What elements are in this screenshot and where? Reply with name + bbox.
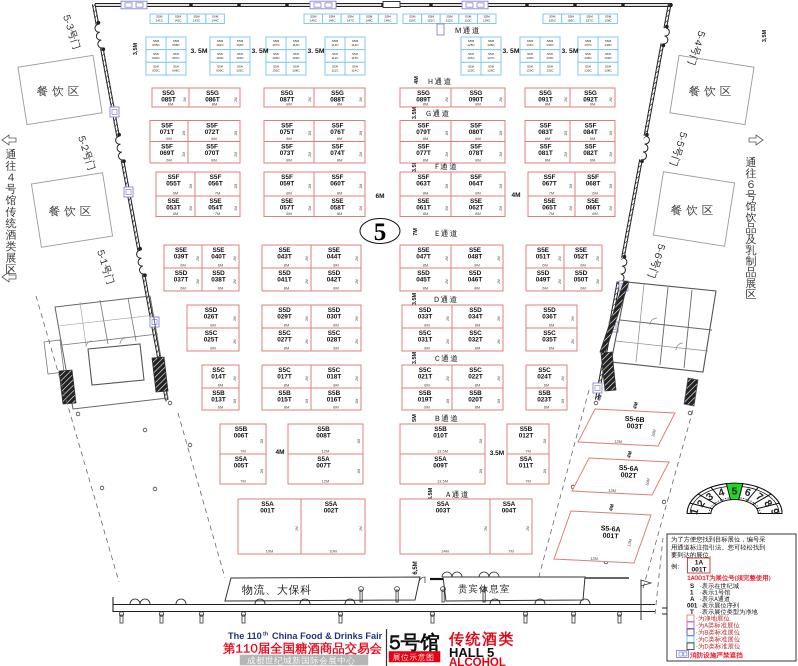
svg-text:2M: 2M (355, 398, 359, 403)
svg-text:3. 5M: 3. 5M (308, 48, 325, 55)
svg-text:3. 5M: 3. 5M (562, 48, 579, 55)
svg-text:025T: 025T (204, 337, 219, 344)
svg-text:003T: 003T (436, 508, 451, 515)
svg-text:6M: 6M (590, 136, 596, 141)
svg-text:029T: 029T (277, 314, 292, 321)
svg-text:143C: 143C (193, 19, 201, 23)
svg-text:8M: 8M (475, 157, 481, 162)
svg-text:006T: 006T (234, 433, 249, 440)
svg-text:001T: 001T (691, 567, 706, 574)
svg-text:030T: 030T (327, 314, 342, 321)
svg-text:3. 5M: 3. 5M (252, 48, 269, 55)
svg-text:2M: 2M (446, 316, 450, 321)
svg-text:116C: 116C (351, 43, 359, 47)
svg-text:12M: 12M (590, 556, 598, 562)
svg-text:2M: 2M (609, 130, 613, 135)
svg-text:2M: 2M (233, 279, 237, 284)
svg-text:004T: 004T (502, 508, 517, 515)
svg-text:7M: 7M (508, 548, 514, 553)
svg-text:133C: 133C (546, 56, 554, 60)
svg-text:8M: 8M (284, 285, 290, 290)
svg-text:147C: 147C (347, 19, 355, 23)
svg-text:028T: 028T (327, 337, 342, 344)
svg-text:2M: 2M (189, 183, 193, 188)
svg-text:13.5M: 13.5M (437, 448, 448, 453)
svg-text:2M: 2M (234, 97, 238, 102)
svg-text:003T: 003T (626, 423, 643, 431)
svg-text:8M: 8M (286, 157, 292, 162)
svg-text:094C: 094C (152, 56, 160, 60)
svg-text:077T: 077T (416, 150, 431, 157)
svg-text:6M: 6M (590, 101, 596, 106)
svg-text:005T: 005T (234, 463, 249, 470)
svg-text:8M: 8M (337, 136, 343, 141)
svg-text:2M: 2M (359, 526, 363, 531)
svg-text:13.5M: 13.5M (437, 478, 448, 483)
svg-text:098C: 098C (172, 43, 180, 47)
svg-text:6M: 6M (218, 262, 224, 267)
svg-text:8M: 8M (545, 136, 551, 141)
svg-text:158C: 158C (604, 19, 612, 23)
svg-text:2M: 2M (445, 183, 449, 188)
svg-text:8M: 8M (475, 190, 481, 195)
svg-text:2M: 2M (233, 256, 237, 261)
svg-text:12M: 12M (614, 439, 622, 445)
svg-text:8M: 8M (284, 322, 290, 327)
svg-text:8M: 8M (333, 345, 339, 350)
svg-text:14M: 14M (441, 548, 449, 553)
svg-text:014T: 014T (211, 374, 226, 381)
svg-text:12M: 12M (608, 488, 616, 494)
svg-text:8M: 8M (423, 136, 429, 141)
svg-text:6M: 6M (173, 211, 179, 216)
svg-text:4M: 4M (275, 449, 284, 456)
svg-text:2M: 2M (499, 206, 503, 211)
svg-text:2M: 2M (484, 526, 488, 531)
svg-text:124C: 124C (467, 56, 475, 60)
svg-text:059T: 059T (280, 181, 295, 188)
svg-text:149C: 149C (384, 19, 392, 23)
svg-text:8M: 8M (286, 190, 292, 195)
svg-text:2M: 2M (355, 339, 359, 344)
svg-text:8M: 8M (475, 101, 481, 106)
svg-text:6M: 6M (549, 345, 555, 350)
svg-text:7M: 7M (525, 478, 531, 483)
svg-text:2M: 2M (260, 438, 264, 443)
svg-text:2M: 2M (543, 438, 547, 443)
svg-text:153C: 153C (464, 19, 472, 23)
svg-text:8M: 8M (333, 262, 339, 267)
svg-text:105C: 105C (272, 68, 280, 72)
svg-text:8M: 8M (423, 285, 429, 290)
svg-text:111C: 111C (332, 68, 340, 72)
svg-text:2M: 2M (183, 97, 187, 102)
svg-text:2M: 2M (234, 130, 238, 135)
svg-text:104C: 104C (236, 43, 244, 47)
svg-text:106C: 106C (272, 56, 280, 60)
svg-text:045T: 045T (416, 277, 431, 284)
svg-text:2M: 2M (561, 376, 565, 381)
svg-text:8M: 8M (423, 101, 429, 106)
svg-text:144C: 144C (211, 19, 219, 23)
svg-text:3,5M: 3,5M (762, 29, 768, 42)
svg-text:050T: 050T (574, 277, 589, 284)
svg-text:027T: 027T (277, 337, 292, 344)
svg-text:8M: 8M (475, 404, 481, 409)
svg-text:3.5M: 3.5M (412, 106, 418, 119)
svg-text:8M: 8M (284, 262, 290, 267)
svg-text:129C: 129C (526, 68, 534, 72)
svg-text:8M: 8M (212, 101, 218, 106)
svg-text:2M: 2M (305, 339, 309, 344)
svg-text:064T: 064T (469, 181, 484, 188)
svg-text:2M: 2M (445, 256, 449, 261)
svg-text:6M: 6M (544, 404, 550, 409)
svg-text:107C: 107C (272, 43, 280, 47)
svg-text:2M: 2M (308, 152, 312, 157)
svg-text:7M: 7M (240, 448, 246, 453)
svg-text:095C: 095C (152, 43, 160, 47)
svg-text:2M: 2M (499, 152, 503, 157)
svg-text:2M: 2M (564, 152, 568, 157)
svg-text:056T: 056T (208, 181, 223, 188)
svg-text:2M: 2M (305, 279, 309, 284)
svg-text:007T: 007T (316, 463, 331, 470)
svg-text:6M: 6M (168, 101, 174, 106)
svg-text:015T: 015T (277, 397, 292, 404)
svg-text:8M: 8M (211, 157, 217, 162)
svg-text:034T: 034T (468, 314, 483, 321)
svg-text:2M: 2M (359, 130, 363, 135)
svg-text:108C: 108C (292, 68, 300, 72)
svg-text:6M: 6M (544, 382, 550, 387)
svg-text:001T: 001T (602, 532, 619, 540)
svg-text:6M: 6M (218, 382, 224, 387)
svg-text:8M: 8M (211, 136, 217, 141)
svg-text:8M: 8M (474, 262, 480, 267)
svg-text:114C: 114C (351, 68, 359, 72)
svg-text:125C: 125C (467, 43, 475, 47)
svg-text:2M: 2M (596, 256, 600, 261)
svg-text:2M: 2M (526, 526, 530, 531)
svg-text:047T: 047T (416, 254, 431, 261)
svg-text:2M: 2M (543, 468, 547, 473)
svg-text:2M: 2M (499, 183, 503, 188)
svg-text:136C: 136C (584, 56, 592, 60)
svg-text:7M: 7M (215, 211, 221, 216)
svg-text:China Food & Drinks Fair: China Food & Drinks Fair (272, 631, 383, 641)
svg-text:024T: 024T (537, 374, 552, 381)
svg-text:2M: 2M (561, 398, 565, 403)
svg-text:2M: 2M (233, 376, 237, 381)
svg-text:2M: 2M (445, 97, 449, 102)
svg-text:008T: 008T (316, 433, 331, 440)
svg-text:103C: 103C (236, 56, 244, 60)
svg-text:8M: 8M (424, 322, 430, 327)
svg-text:2M: 2M (233, 339, 237, 344)
svg-text:2M: 2M (499, 97, 503, 102)
svg-text:8M: 8M (333, 404, 339, 409)
svg-text:th: th (263, 632, 269, 638)
svg-text:035T: 035T (542, 337, 557, 344)
svg-text:2M: 2M (499, 130, 503, 135)
svg-text:021T: 021T (418, 374, 433, 381)
svg-text:2M: 2M (497, 256, 501, 261)
svg-text:6M: 6M (218, 404, 224, 409)
svg-text:8M: 8M (424, 382, 430, 387)
svg-text:051T: 051T (536, 254, 551, 261)
svg-text:042T: 042T (327, 277, 342, 284)
svg-text:2M: 2M (305, 398, 309, 403)
svg-text:145C: 145C (310, 19, 318, 23)
svg-text:2M: 2M (234, 206, 238, 211)
svg-text:7M: 7M (549, 190, 555, 195)
svg-text:010T: 010T (433, 433, 448, 440)
svg-text:6M: 6M (180, 262, 186, 267)
svg-text:2M: 2M (355, 376, 359, 381)
svg-text:2M: 2M (359, 183, 363, 188)
svg-text:2M: 2M (305, 256, 309, 261)
svg-text:070T: 070T (205, 150, 220, 157)
svg-text:5: 5 (732, 485, 738, 497)
svg-text:2M: 2M (596, 279, 600, 284)
svg-text:140C: 140C (604, 43, 612, 47)
svg-text:8M: 8M (286, 136, 292, 141)
svg-text:2M: 2M (609, 97, 613, 102)
svg-text:2M: 2M (355, 256, 359, 261)
svg-text:2M: 2M (497, 279, 501, 284)
svg-text:7M: 7M (215, 190, 221, 195)
svg-text:8M: 8M (475, 382, 481, 387)
svg-text:5M: 5M (412, 414, 418, 422)
svg-text:110C: 110C (292, 43, 300, 47)
svg-text:048T: 048T (468, 254, 483, 261)
svg-text:2M: 2M (446, 339, 450, 344)
svg-text:8M: 8M (286, 101, 292, 106)
svg-text:074T: 074T (330, 150, 345, 157)
svg-text:2M: 2M (234, 152, 238, 157)
svg-text:8M: 8M (474, 285, 480, 290)
svg-text:8M: 8M (475, 211, 481, 216)
svg-text:2M: 2M (571, 339, 575, 344)
svg-text:8M: 8M (475, 322, 481, 327)
svg-text:5: 5 (374, 219, 387, 246)
svg-text:155C: 155C (549, 19, 557, 23)
svg-text:139C: 139C (604, 56, 612, 60)
svg-text:3.5M: 3.5M (490, 450, 504, 457)
svg-text:12M: 12M (322, 448, 330, 453)
svg-text:2M: 2M (558, 279, 562, 284)
svg-text:043T: 043T (277, 254, 292, 261)
svg-text:148C: 148C (365, 19, 373, 23)
svg-text:7M: 7M (240, 478, 246, 483)
svg-text:078T: 078T (469, 150, 484, 157)
svg-text:2M: 2M (609, 152, 613, 157)
svg-text:2M: 2M (445, 206, 449, 211)
svg-text:8M: 8M (337, 211, 343, 216)
svg-text:067T: 067T (542, 181, 557, 188)
svg-text:2M: 2M (445, 152, 449, 157)
svg-text:2M: 2M (359, 97, 363, 102)
svg-text:2M: 2M (445, 279, 449, 284)
svg-text:2M: 2M (446, 376, 450, 381)
svg-text:2M: 2M (479, 438, 483, 443)
svg-text:2M: 2M (571, 316, 575, 321)
svg-text:037T: 037T (174, 277, 189, 284)
svg-text:141C: 141C (156, 19, 164, 23)
svg-text:2M: 2M (479, 468, 483, 473)
svg-text:2M: 2M (564, 130, 568, 135)
svg-text:8M: 8M (423, 211, 429, 216)
svg-text:2M: 2M (355, 316, 359, 321)
svg-text:3.5M: 3.5M (428, 487, 434, 500)
svg-text:040T: 040T (211, 254, 226, 261)
svg-text:6,5M: 6,5M (413, 561, 419, 574)
svg-text:8M: 8M (284, 345, 290, 350)
svg-text:096C: 096C (172, 68, 180, 72)
svg-text:3. 5M: 3. 5M (503, 48, 520, 55)
svg-text:6M: 6M (166, 136, 172, 141)
svg-text:8M: 8M (333, 382, 339, 387)
svg-text:2M: 2M (233, 398, 237, 403)
svg-text:2M: 2M (355, 279, 359, 284)
svg-text:8M: 8M (545, 101, 551, 106)
svg-text:2M: 2M (497, 398, 501, 403)
svg-text:2M: 2M (357, 468, 361, 473)
svg-text:2M: 2M (446, 398, 450, 403)
svg-text:026T: 026T (204, 314, 219, 321)
svg-text:6M: 6M (542, 262, 548, 267)
svg-text:138C: 138C (604, 68, 612, 72)
svg-text:2M: 2M (308, 97, 312, 102)
svg-text:2M: 2M (359, 152, 363, 157)
svg-text:10M: 10M (266, 548, 274, 553)
svg-text:115C: 115C (351, 56, 359, 60)
svg-text:093C: 093C (152, 68, 160, 72)
svg-text:2M: 2M (182, 130, 186, 135)
svg-text:033T: 033T (418, 314, 433, 321)
svg-text:2M: 2M (260, 468, 264, 473)
svg-text:2M: 2M (564, 97, 568, 102)
svg-text:2M: 2M (308, 206, 312, 211)
svg-text:131C: 131C (526, 43, 534, 47)
svg-text:017T: 017T (277, 374, 292, 381)
svg-text:082T: 082T (583, 150, 598, 157)
svg-text:152C: 152C (446, 19, 454, 23)
svg-text:8M: 8M (424, 404, 430, 409)
svg-text:137C: 137C (584, 43, 592, 47)
svg-text:101C: 101C (216, 43, 224, 47)
svg-text:2M: 2M (196, 279, 200, 284)
svg-text:8M: 8M (423, 262, 429, 267)
svg-text:127C: 127C (487, 56, 495, 60)
svg-text:041T: 041T (277, 277, 292, 284)
svg-text:157C: 157C (586, 19, 594, 23)
svg-text:044T: 044T (327, 254, 342, 261)
svg-text:2M: 2M (308, 183, 312, 188)
svg-text:126C: 126C (487, 68, 495, 72)
svg-text:8M: 8M (337, 101, 343, 106)
svg-text:130C: 130C (526, 56, 534, 60)
svg-text:032T: 032T (468, 337, 483, 344)
svg-text:2M: 2M (196, 256, 200, 261)
svg-text:011T: 011T (519, 463, 533, 470)
svg-text:1A: 1A (695, 560, 704, 567)
svg-text:6M: 6M (592, 211, 598, 216)
svg-text:3,5M: 3,5M (133, 42, 139, 55)
svg-text:8M: 8M (337, 157, 343, 162)
svg-text:099C: 099C (216, 68, 224, 72)
svg-text:3.5M: 3.5M (412, 292, 418, 305)
svg-text:134C: 134C (546, 43, 554, 47)
svg-text:069T: 069T (160, 150, 175, 157)
svg-text:038T: 038T (211, 277, 226, 284)
svg-text:009T: 009T (433, 463, 448, 470)
svg-text:113C: 113C (331, 43, 339, 47)
svg-text:3.5M: 3.5M (412, 351, 418, 364)
svg-text:6M: 6M (173, 190, 179, 195)
svg-text:12M: 12M (322, 478, 330, 483)
svg-text:6M: 6M (592, 190, 598, 195)
svg-text:8M: 8M (333, 322, 339, 327)
svg-text:039T: 039T (174, 254, 189, 261)
svg-text:2M: 2M (497, 376, 501, 381)
svg-text:146C: 146C (328, 19, 336, 23)
svg-text:2M: 2M (497, 339, 501, 344)
svg-text:The 110: The 110 (228, 631, 262, 641)
svg-text:073T: 073T (280, 150, 295, 157)
svg-text:2M: 2M (359, 206, 363, 211)
svg-text:10M: 10M (329, 548, 337, 553)
svg-text:7M: 7M (525, 448, 531, 453)
svg-text:023T: 023T (537, 397, 552, 404)
svg-text:2M: 2M (569, 183, 573, 188)
svg-text:100C: 100C (216, 56, 224, 60)
svg-text:8M: 8M (284, 404, 290, 409)
svg-text:020T: 020T (468, 397, 483, 404)
svg-text:3. 5M: 3. 5M (191, 48, 208, 55)
svg-text:6M: 6M (590, 157, 596, 162)
svg-text:8M: 8M (475, 345, 481, 350)
svg-text:2M: 2M (295, 526, 299, 531)
svg-text:135C: 135C (584, 68, 592, 72)
svg-text:7M: 7M (549, 211, 555, 216)
svg-text:154C: 154C (483, 19, 491, 23)
svg-text:156C: 156C (567, 19, 575, 23)
svg-text:013T: 013T (211, 397, 226, 404)
svg-text:002T: 002T (620, 472, 637, 480)
svg-text:097C: 097C (172, 56, 180, 60)
svg-text:2M: 2M (189, 206, 193, 211)
svg-text:2M: 2M (182, 152, 186, 157)
svg-text:2M: 2M (357, 438, 361, 443)
svg-text:112C: 112C (331, 56, 339, 60)
svg-text:2M: 2M (569, 206, 573, 211)
svg-text:6M: 6M (580, 285, 586, 290)
svg-text:063T: 063T (416, 181, 431, 188)
svg-text:ALCOHOL: ALCOHOL (449, 657, 506, 666)
svg-text:2M: 2M (558, 256, 562, 261)
svg-text:018T: 018T (327, 374, 342, 381)
svg-text:8M: 8M (475, 136, 481, 141)
svg-text:4M: 4M (511, 192, 520, 199)
svg-text:001T: 001T (260, 508, 275, 515)
svg-text:068T: 068T (586, 181, 601, 188)
svg-text:2M: 2M (445, 130, 449, 135)
svg-text:8M: 8M (210, 345, 216, 350)
svg-text:150C: 150C (409, 19, 417, 23)
svg-text:2M: 2M (234, 183, 238, 188)
